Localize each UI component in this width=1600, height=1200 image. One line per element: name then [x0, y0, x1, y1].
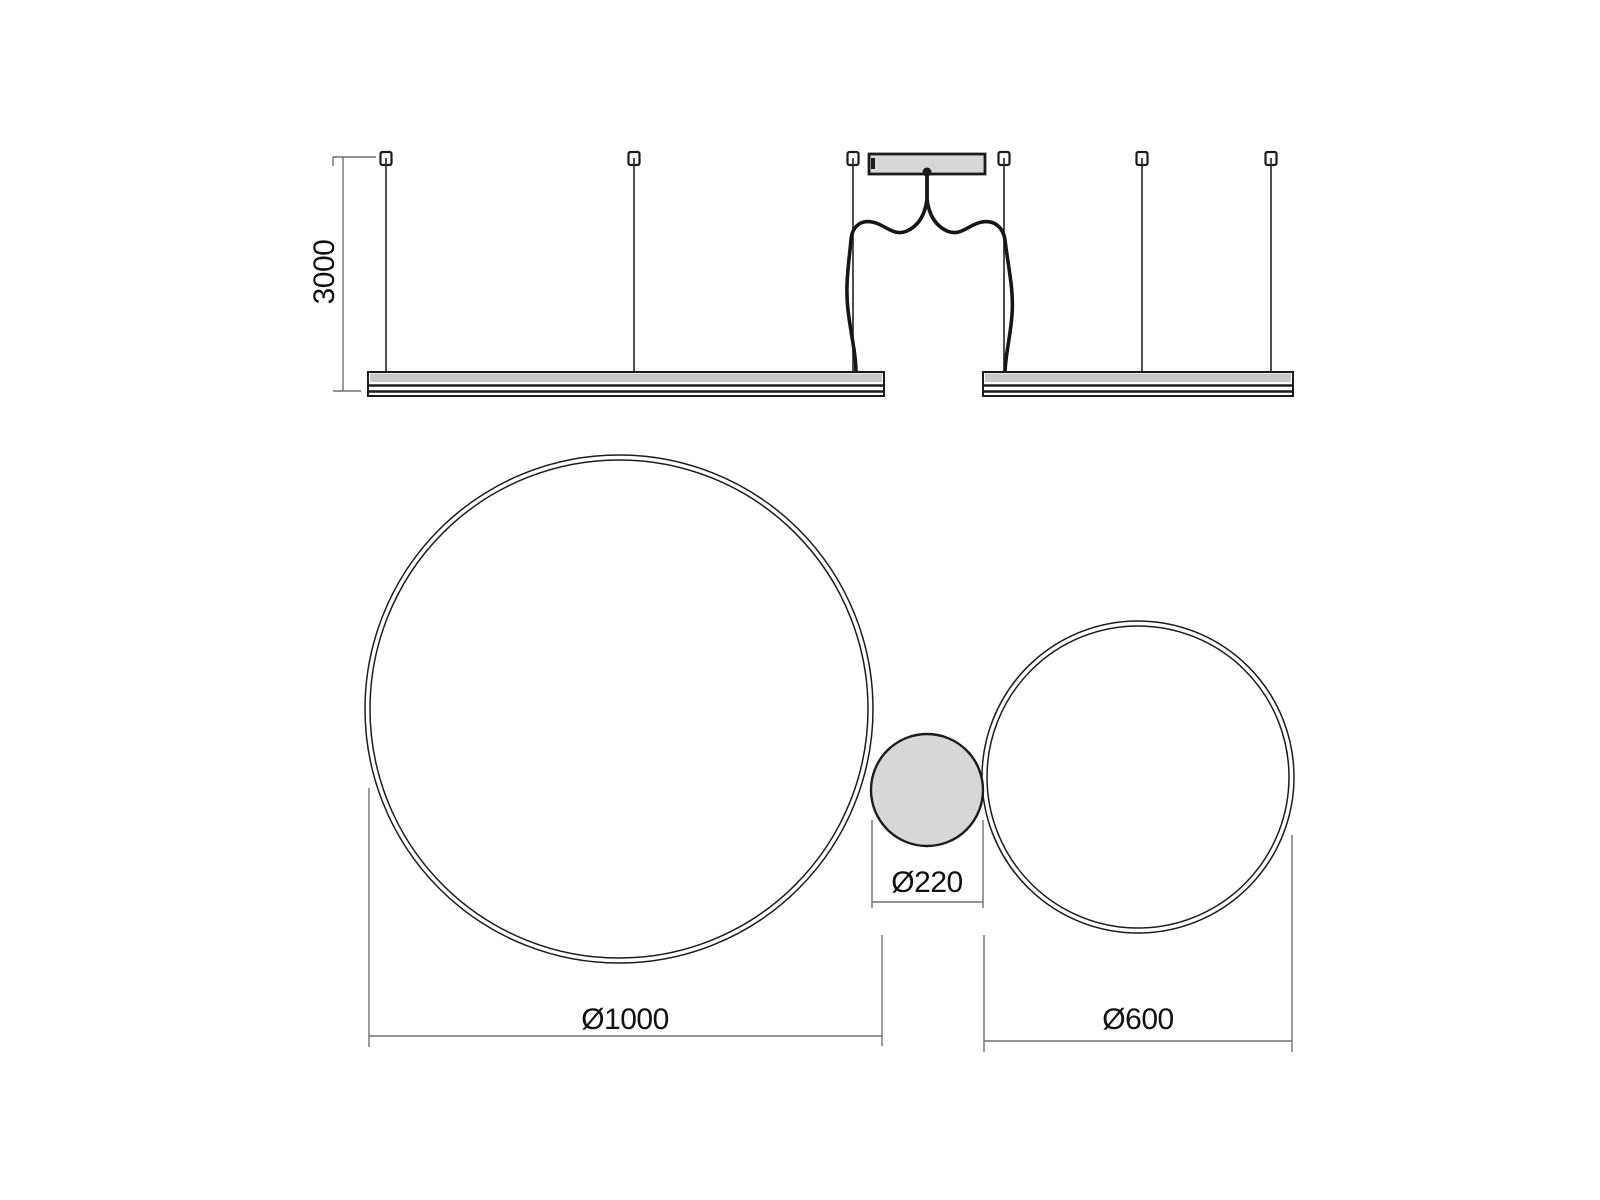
plan-view: Ø220 Ø1000 Ø600	[365, 455, 1294, 1052]
small-ring-diameter-label: Ø600	[1102, 1003, 1173, 1036]
large-ring-inner-circle	[370, 460, 868, 958]
small-ring	[982, 621, 1294, 933]
power-cable	[847, 175, 1012, 374]
suspension-wires	[386, 158, 1271, 373]
technical-drawing-page: 3000	[0, 0, 1600, 1200]
large-ring	[365, 455, 873, 963]
small-ring-inner-circle	[987, 626, 1289, 928]
side-elevation-view: 3000	[308, 152, 1293, 396]
canopy-terminal	[871, 158, 875, 169]
suspension-height-label: 3000	[308, 240, 341, 305]
large-ring-outer-circle	[365, 455, 873, 963]
left-bar-top-band	[370, 374, 882, 383]
ceiling-canopy	[869, 154, 985, 177]
right-bar-top-band	[985, 374, 1291, 383]
large-ring-diameter-label: Ø1000	[581, 1003, 669, 1036]
large-ring-diameter-dimension: Ø1000	[369, 788, 882, 1047]
right-profile-bar	[983, 372, 1293, 396]
left-profile-bar	[368, 372, 884, 396]
suspension-height-dimension: 3000	[308, 157, 376, 391]
driver-disc	[871, 734, 983, 846]
driver-diameter-label: Ø220	[891, 866, 962, 899]
pendant-light-dimension-drawing: 3000	[0, 0, 1600, 1200]
power-cable-left-branch	[847, 175, 927, 374]
power-cable-right-branch	[927, 175, 1012, 374]
small-ring-outer-circle	[982, 621, 1294, 933]
small-ring-diameter-dimension: Ø600	[984, 835, 1292, 1052]
